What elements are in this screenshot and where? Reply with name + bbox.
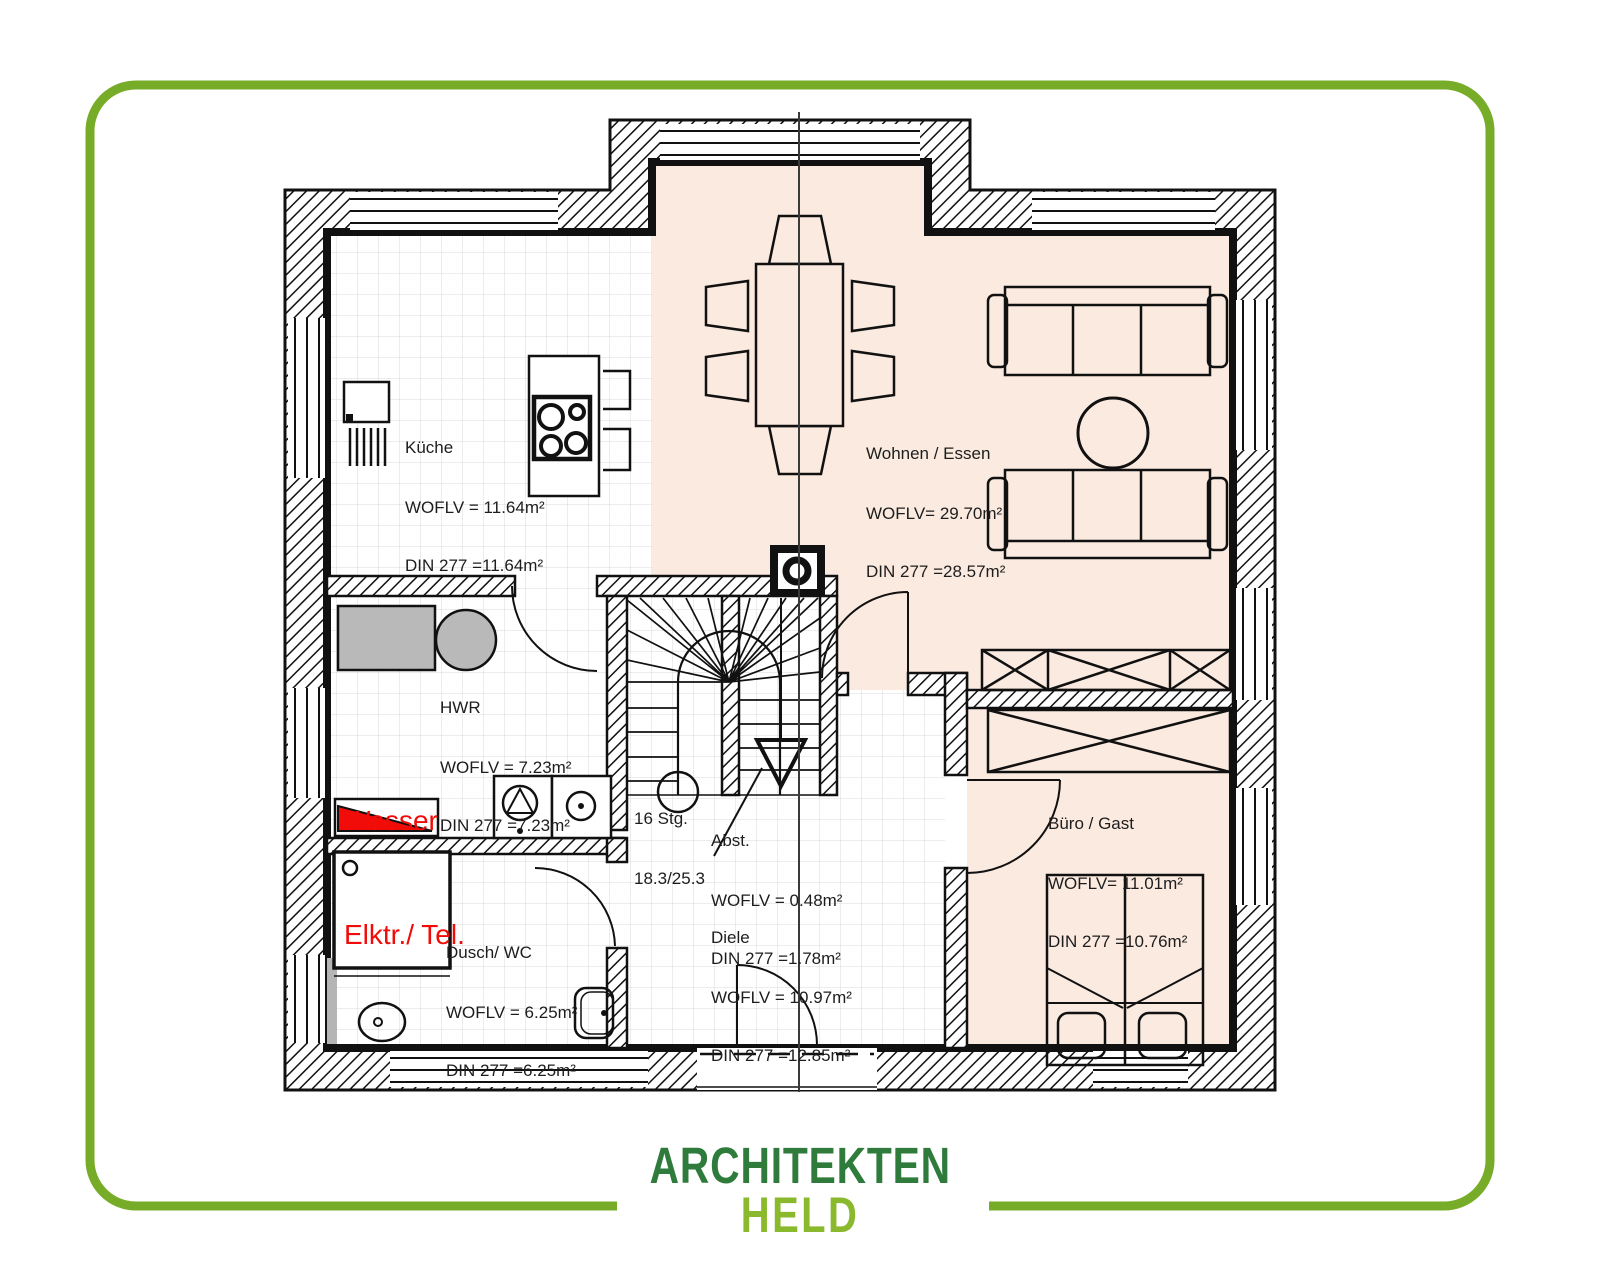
room-area-woflv: WOFLV = 6.25m²	[446, 1003, 577, 1023]
room-label-diele: Diele WOFLV = 10.97m² DIN 277 =12.85m²	[711, 889, 852, 1085]
logo-held: HELD	[0, 1186, 1600, 1244]
room-area-woflv: WOFLV= 29.70m²	[866, 504, 1005, 524]
room-area-din: DIN 277 =28.57m²	[866, 562, 1005, 582]
stairs-count: 16 Stg.	[634, 809, 705, 829]
page: Küche WOFLV = 11.64m² DIN 277 =11.64m² W…	[0, 0, 1600, 1280]
room-area-din: DIN 277 =11.64m²	[405, 556, 545, 576]
chimney	[770, 545, 825, 597]
room-area-woflv: WOFLV = 10.97m²	[711, 988, 852, 1008]
room-name: Dusch/ WC	[446, 943, 577, 963]
room-area-din: DIN 277 =10.76m²	[1048, 932, 1187, 952]
room-name: Diele	[711, 928, 852, 948]
room-name: Büro / Gast	[1048, 814, 1187, 834]
stairs-dimensions: 18.3/25.3	[634, 869, 705, 889]
room-label-buero-gast: Büro / Gast WOFLV= 11.01m² DIN 277 =10.7…	[1048, 775, 1187, 971]
floor-plan-drawing	[0, 0, 1600, 1280]
washing-machine	[338, 606, 435, 670]
room-name: Wohnen / Essen	[866, 444, 1005, 464]
room-name: HWR	[440, 698, 571, 718]
utilities-water: Wasser	[344, 802, 465, 840]
room-name: Abst.	[711, 831, 842, 851]
room-area-din: DIN 277 =6.25m²	[446, 1061, 577, 1081]
room-area-woflv: WOFLV= 11.01m²	[1048, 874, 1187, 894]
stairs-label: 16 Stg. 18.3/25.3	[634, 769, 705, 909]
room-label-kueche: Küche WOFLV = 11.64m² DIN 277 =11.64m²	[405, 399, 545, 595]
room-name: Küche	[405, 438, 545, 458]
room-area-din: DIN 277 =12.85m²	[711, 1046, 852, 1066]
utilities-electric-tel: Elktr./ Tel.	[344, 916, 465, 954]
room-area-woflv: WOFLV = 11.64m²	[405, 498, 545, 518]
utilities-label: Wasser Elktr./ Tel.	[344, 726, 465, 992]
room-label-dusch-wc: Dusch/ WC WOFLV = 6.25m² DIN 277 =6.25m²	[446, 904, 577, 1100]
room-label-wohnen-essen: Wohnen / Essen WOFLV= 29.70m² DIN 277 =2…	[866, 405, 1005, 601]
